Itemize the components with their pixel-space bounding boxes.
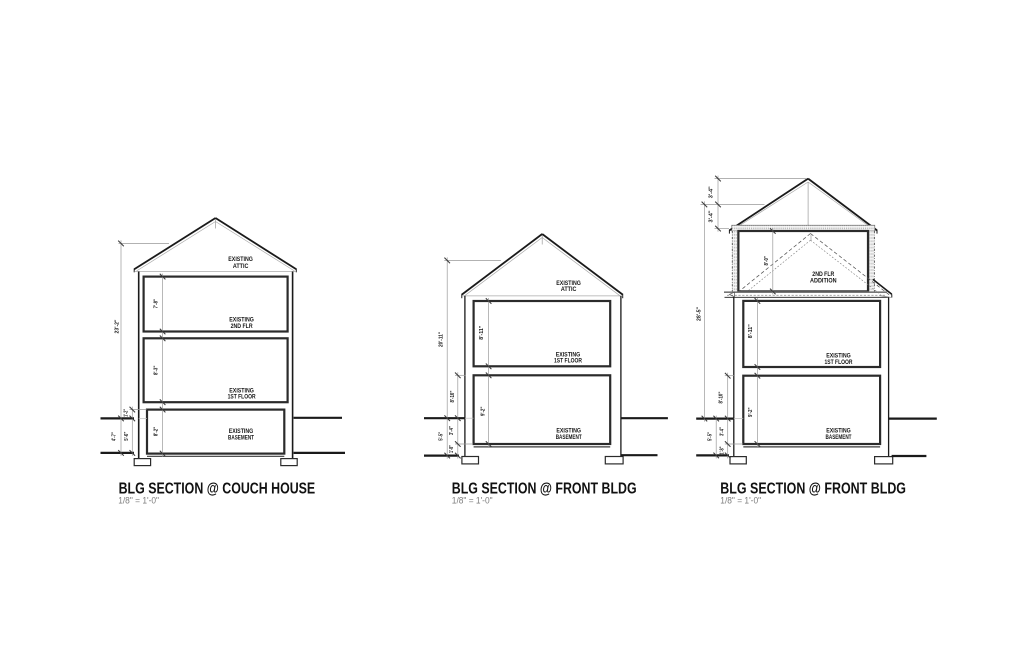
- svg-text:1'-8": 1'-8": [449, 445, 455, 453]
- svg-text:5'-5": 5'-5": [439, 431, 445, 441]
- svg-text:5'-5": 5'-5": [707, 431, 713, 441]
- svg-text:BASEMENT: BASEMENT: [228, 434, 254, 441]
- svg-text:BASEMENT: BASEMENT: [556, 434, 582, 441]
- svg-text:1ST FLOOR: 1ST FLOOR: [554, 358, 582, 365]
- svg-text:EXISTING: EXISTING: [228, 256, 253, 263]
- svg-text:1'-2": 1'-2": [124, 408, 130, 416]
- svg-text:ATTIC: ATTIC: [561, 286, 577, 293]
- svg-text:3'-4": 3'-4": [719, 426, 725, 436]
- svg-text:1ST FLOOR: 1ST FLOOR: [825, 359, 853, 366]
- svg-text:3'-4": 3'-4": [708, 186, 714, 199]
- svg-text:1'-8": 1'-8": [719, 446, 725, 454]
- svg-text:1/8" = 1'-0": 1/8" = 1'-0": [720, 496, 761, 506]
- svg-text:3'-4": 3'-4": [708, 210, 714, 223]
- svg-text:8'-10": 8'-10": [450, 390, 456, 403]
- svg-text:9'-2": 9'-2": [748, 407, 754, 417]
- svg-text:2ND FLR: 2ND FLR: [231, 323, 253, 330]
- svg-text:1/8" = 1'-0": 1/8" = 1'-0": [118, 496, 159, 506]
- svg-text:23'-2": 23'-2": [114, 319, 120, 334]
- svg-text:8'-3": 8'-3": [154, 365, 160, 375]
- svg-text:1ST FLOOR: 1ST FLOOR: [228, 394, 256, 401]
- svg-text:8'-11": 8'-11": [748, 324, 754, 339]
- svg-text:5'-6": 5'-6": [124, 431, 130, 441]
- svg-text:20'-11": 20'-11": [439, 331, 445, 347]
- svg-text:9'-2": 9'-2": [481, 406, 487, 416]
- svg-text:8'-10": 8'-10": [719, 391, 725, 404]
- svg-text:1/8" = 1'-0": 1/8" = 1'-0": [452, 496, 493, 506]
- svg-text:ADDITION: ADDITION: [810, 278, 837, 285]
- svg-text:ATTIC: ATTIC: [233, 263, 249, 270]
- svg-text:7'-8": 7'-8": [154, 298, 160, 308]
- svg-text:28'-5": 28'-5": [696, 306, 702, 321]
- svg-text:8'-0": 8'-0": [764, 255, 770, 265]
- svg-text:3'-4": 3'-4": [449, 426, 455, 436]
- svg-text:8'-11": 8'-11": [479, 325, 485, 340]
- svg-text:4'-7": 4'-7": [112, 432, 118, 442]
- svg-text:8'-2": 8'-2": [153, 426, 159, 436]
- svg-text:BASEMENT: BASEMENT: [826, 434, 852, 441]
